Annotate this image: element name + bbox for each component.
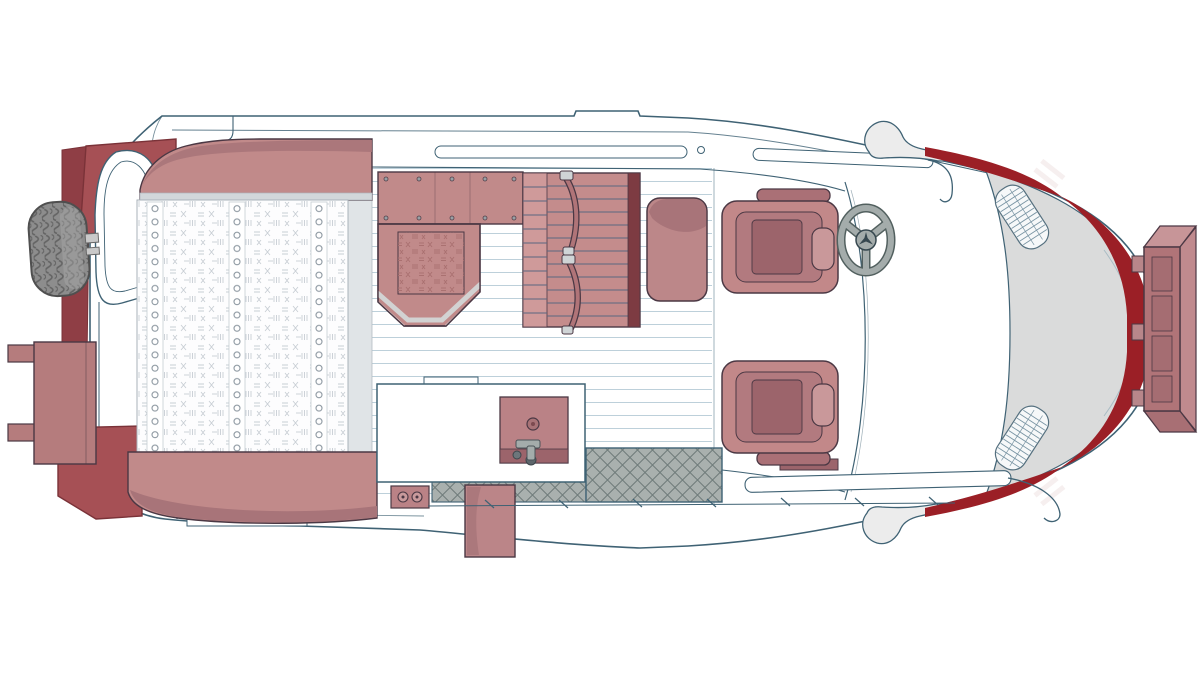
upper-counter <box>378 172 523 224</box>
front-box-slats <box>1152 257 1172 402</box>
seat-cushion <box>752 220 802 274</box>
tire-bracket-1 <box>85 233 99 243</box>
headrest <box>757 189 830 202</box>
outlet <box>391 486 429 508</box>
sink <box>500 397 568 465</box>
bench-left-column <box>523 173 547 327</box>
camper-van-floorplan <box>0 0 1200 673</box>
rear-shelf <box>8 342 96 464</box>
headboard-trim <box>140 193 372 200</box>
passenger-seat <box>722 361 838 465</box>
van-floorplan-illustration <box>0 0 1200 673</box>
step-panel <box>465 485 515 557</box>
belt-buckle <box>560 171 573 180</box>
tire-bracket-2 <box>86 247 99 255</box>
driver-seat <box>722 189 838 293</box>
roof-groove-1 <box>435 146 687 158</box>
entry-step-main <box>586 448 722 502</box>
bed-side-rail <box>348 200 372 452</box>
front-box-side <box>1180 227 1196 431</box>
front-box <box>1132 226 1196 432</box>
bed <box>128 139 377 523</box>
ottoman <box>647 198 707 301</box>
tuft-buttons <box>147 202 327 452</box>
faucet-knob <box>513 451 521 459</box>
armrest <box>812 228 834 270</box>
bench-seat <box>523 171 640 334</box>
roof-fixture <box>698 147 705 154</box>
belt-buckle <box>562 255 575 264</box>
belt-buckle <box>562 326 573 334</box>
bench-backrest-strip <box>628 173 640 327</box>
belt-buckle <box>563 247 574 255</box>
